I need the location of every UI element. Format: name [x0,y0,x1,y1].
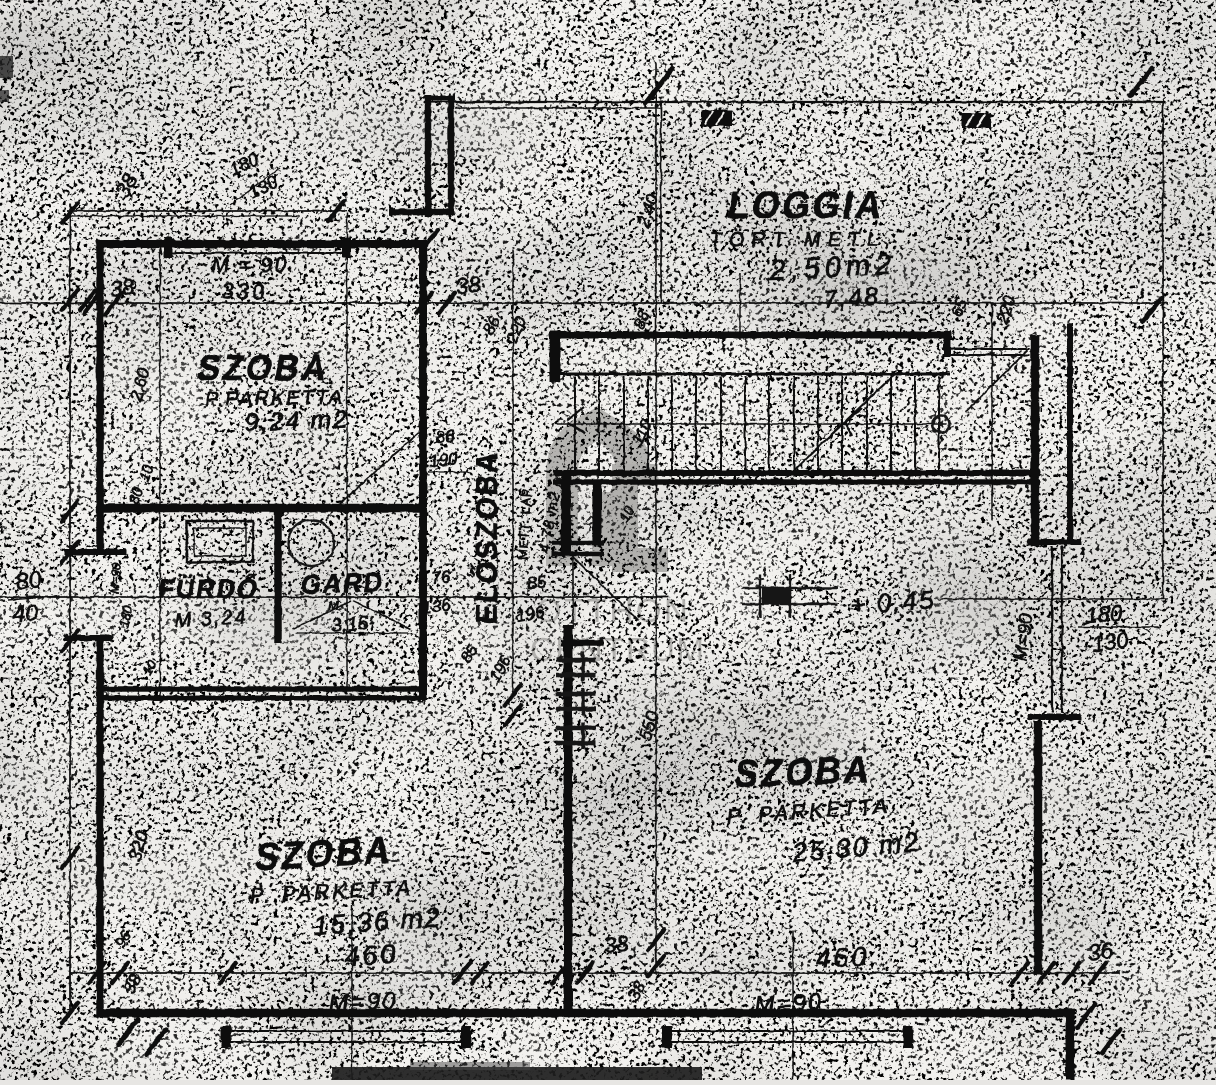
svg-text:330: 330 [220,278,269,304]
svg-text:GARD: GARD [299,567,386,601]
svg-text:LOGGIA: LOGGIA [725,184,889,226]
svg-text:9,24 m2: 9,24 m2 [244,405,349,437]
svg-text:M 3,24: M 3,24 [174,606,248,632]
svg-text:136: 136 [421,595,452,618]
svg-text:7,48: 7,48 [822,282,880,314]
svg-text:M=90: M=90 [107,562,124,594]
svg-text:460: 460 [815,941,871,974]
svg-text:38: 38 [455,271,483,299]
svg-text:180: 180 [1085,600,1124,628]
svg-text:36: 36 [1086,937,1115,966]
svg-text:SZOBA: SZOBA [732,748,875,795]
svg-text:38: 38 [108,274,136,302]
svg-text:40: 40 [12,599,40,627]
svg-text:+ 0,45: + 0,45 [849,584,936,620]
svg-text:86: 86 [435,427,456,447]
svg-text:460: 460 [343,938,399,972]
svg-text:80: 80 [14,566,43,595]
svg-text:130: 130 [1090,627,1131,657]
svg-text:M=90: M=90 [328,988,398,1017]
svg-text:ELŐSZOBA: ELŐSZOBA [469,449,504,626]
svg-text:SZOBA: SZOBA [253,829,396,879]
svg-text:M=90: M=90 [754,988,824,1019]
svg-text:85: 85 [526,572,547,593]
svg-text:190: 190 [428,449,459,471]
svg-text:TÖRT METL.: TÖRT METL. [708,229,899,251]
svg-text:FÜRDŐ: FÜRDŐ [156,574,262,605]
svg-text:76: 76 [430,567,451,588]
svg-text:M = 90: M = 90 [210,254,289,277]
svg-text:38: 38 [603,930,631,958]
svg-text:SZOBA: SZOBA [195,348,333,388]
